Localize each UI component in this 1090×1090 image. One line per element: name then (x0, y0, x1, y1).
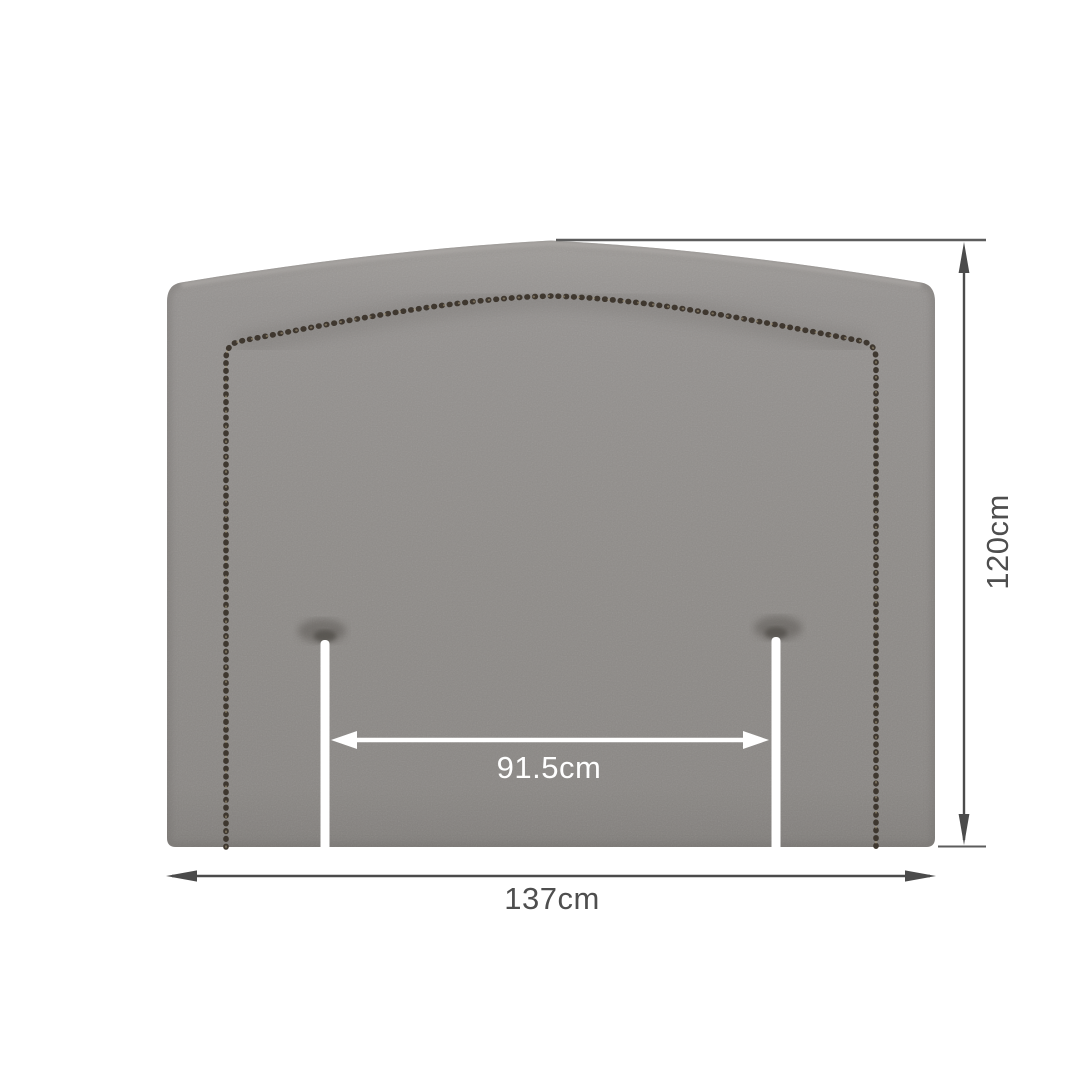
width-arrowhead-right (905, 870, 936, 881)
right-leg-slot (772, 637, 781, 852)
width-dimension: 137cm (166, 870, 936, 916)
inner-width-label: 91.5cm (497, 750, 602, 785)
width-label: 137cm (504, 881, 600, 916)
width-arrowhead-left (166, 870, 197, 881)
headboard-diagram-svg: 120cm 137cm 91.5cm (0, 0, 1090, 1090)
left-leg-slot (321, 640, 330, 852)
height-label: 120cm (980, 494, 1015, 590)
height-arrowhead-down (959, 814, 970, 845)
product-dimension-diagram: 120cm 137cm 91.5cm (0, 0, 1090, 1090)
height-arrowhead-up (959, 242, 970, 273)
